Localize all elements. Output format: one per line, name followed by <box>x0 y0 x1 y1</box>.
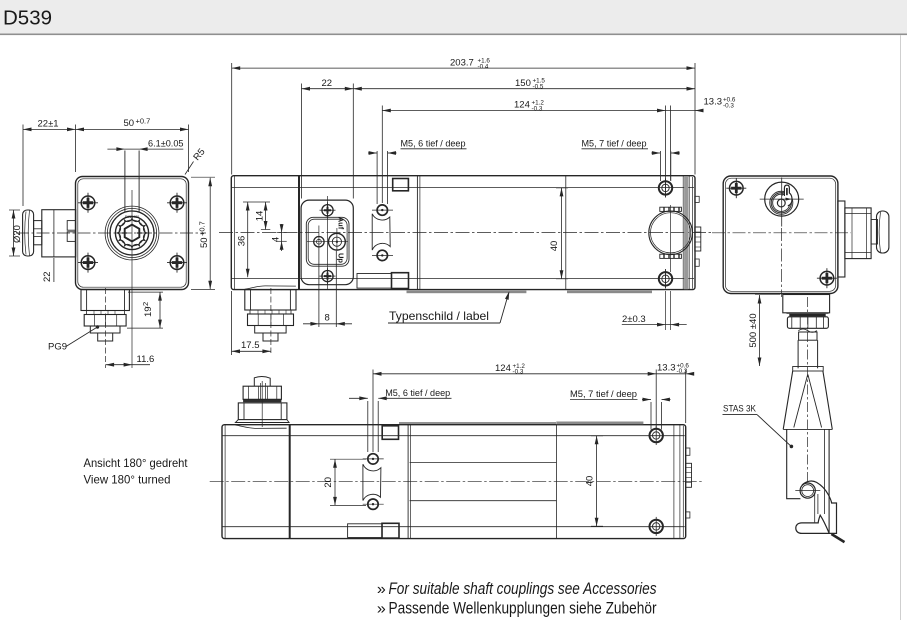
svg-text:Auf: Auf <box>337 217 346 230</box>
svg-text:13.3: 13.3 <box>704 97 723 108</box>
svg-text:D539: D539 <box>3 7 52 30</box>
svg-text:-0.3: -0.3 <box>677 368 688 375</box>
svg-text:36: 36 <box>237 236 248 247</box>
svg-text:STAS 3K: STAS 3K <box>723 404 757 415</box>
svg-text:50: 50 <box>124 118 135 129</box>
svg-text:22: 22 <box>42 271 53 282</box>
svg-text:13.3: 13.3 <box>657 362 676 373</box>
svg-text:50: 50 <box>199 237 210 248</box>
svg-text:124: 124 <box>495 363 511 374</box>
svg-text:-0.5: -0.5 <box>533 84 544 91</box>
svg-text:-0.3: -0.3 <box>513 369 524 376</box>
svg-text:203.7: 203.7 <box>450 58 474 69</box>
svg-text:View 180° turned: View 180° turned <box>84 472 171 486</box>
svg-text:8: 8 <box>325 312 330 323</box>
svg-text:Up: Up <box>337 253 346 263</box>
svg-text:For suitable shaft couplings s: For suitable shaft couplings see Accesso… <box>389 580 657 598</box>
svg-text:500 ±40: 500 ±40 <box>748 313 759 347</box>
svg-text:150: 150 <box>515 78 531 89</box>
svg-text:M5, 7 tief / deep: M5, 7 tief / deep <box>582 138 647 149</box>
svg-text:11.6: 11.6 <box>137 354 155 365</box>
svg-text:M5, 7 tief / deep: M5, 7 tief / deep <box>570 389 637 400</box>
svg-text:20: 20 <box>323 477 334 488</box>
svg-text:17.5: 17.5 <box>241 340 260 351</box>
svg-text:Passende Wellenkupplungen sieh: Passende Wellenkupplungen siehe Zubehör <box>389 600 657 618</box>
svg-text:»: » <box>377 581 386 598</box>
svg-text:Ansicht 180° gedreht: Ansicht 180° gedreht <box>84 456 189 470</box>
svg-text:»: » <box>377 601 386 618</box>
svg-text:124: 124 <box>514 100 530 111</box>
svg-text:14: 14 <box>254 211 265 222</box>
svg-text:4: 4 <box>270 237 281 242</box>
svg-text:-0.3: -0.3 <box>723 102 734 109</box>
svg-text:22: 22 <box>322 78 333 89</box>
svg-text:6.1±0.05: 6.1±0.05 <box>148 138 184 149</box>
svg-text:22±1: 22±1 <box>38 119 59 130</box>
svg-text:+0.7: +0.7 <box>197 221 206 236</box>
svg-text:M5, 6 tief / deep: M5, 6 tief / deep <box>401 138 466 149</box>
svg-text:Typenschild / label: Typenschild / label <box>389 309 489 323</box>
svg-text:2±0.3: 2±0.3 <box>622 314 646 325</box>
svg-text:Ø20: Ø20 <box>12 225 23 243</box>
svg-text:+0.7: +0.7 <box>136 117 151 126</box>
svg-text:M5, 6 tief / deep: M5, 6 tief / deep <box>385 388 450 399</box>
svg-text:40: 40 <box>585 476 596 487</box>
svg-text:-0.3: -0.3 <box>532 105 543 112</box>
svg-text:-2: -2 <box>141 302 150 309</box>
svg-text:PG9: PG9 <box>48 342 67 353</box>
svg-text:-0.4: -0.4 <box>478 63 489 70</box>
svg-text:40: 40 <box>549 241 560 252</box>
